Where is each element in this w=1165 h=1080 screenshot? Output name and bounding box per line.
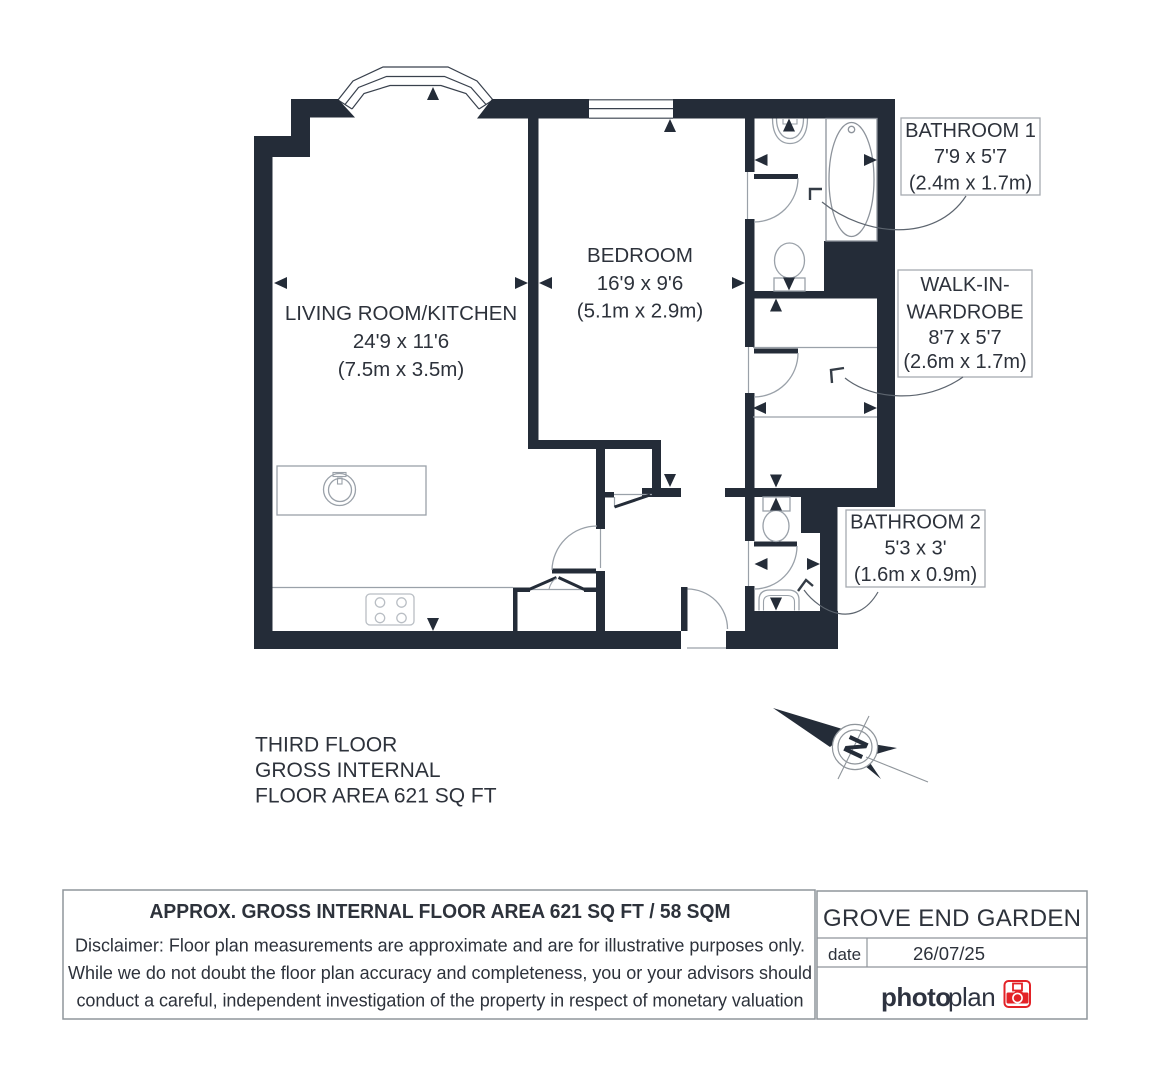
svg-text:BATHROOM 1: BATHROOM 1 [905,120,1036,142]
svg-text:GROVE END GARDEN: GROVE END GARDEN [823,905,1081,932]
svg-text:(1.6m x 0.9m): (1.6m x 0.9m) [854,564,977,586]
svg-text:LIVING ROOM/KITCHEN: LIVING ROOM/KITCHEN [285,302,517,325]
svg-text:THIRD FLOOR: THIRD FLOOR [255,734,397,757]
svg-text:FLOOR AREA 621 SQ FT: FLOOR AREA 621 SQ FT [255,785,497,808]
svg-text:BATHROOM 2: BATHROOM 2 [850,512,981,534]
svg-text:16'9 x 9'6: 16'9 x 9'6 [597,272,683,295]
svg-text:GROSS INTERNAL: GROSS INTERNAL [255,759,441,782]
svg-text:(7.5m x 3.5m): (7.5m x 3.5m) [338,358,464,381]
svg-text:APPROX. GROSS INTERNAL FLOOR A: APPROX. GROSS INTERNAL FLOOR AREA 621 SQ… [150,901,731,923]
svg-text:Disclaimer: Floor plan measure: Disclaimer: Floor plan measurements are … [75,936,805,956]
svg-text:24'9 x 11'6: 24'9 x 11'6 [353,330,449,353]
svg-text:WALK-IN-: WALK-IN- [920,274,1009,296]
svg-text:conduct a careful, independent: conduct a careful, independent investiga… [77,991,804,1011]
svg-text:date: date [828,945,861,964]
svg-text:26/07/25: 26/07/25 [913,943,985,964]
svg-text:While we do not doubt the floo: While we do not doubt the floor plan acc… [68,963,812,983]
svg-text:BEDROOM: BEDROOM [587,244,693,267]
svg-text:8'7 x 5'7: 8'7 x 5'7 [928,327,1001,349]
svg-text:5'3 x 3': 5'3 x 3' [884,538,946,560]
svg-text:WARDROBE: WARDROBE [906,302,1023,324]
svg-text:7'9 x 5'7: 7'9 x 5'7 [934,146,1007,168]
svg-text:plan: plan [948,982,995,1012]
svg-text:photo: photo [881,982,951,1012]
svg-text:(5.1m x 2.9m): (5.1m x 2.9m) [577,300,703,323]
svg-text:(2.6m x 1.7m): (2.6m x 1.7m) [903,351,1026,373]
svg-text:(2.4m x 1.7m): (2.4m x 1.7m) [909,173,1032,195]
